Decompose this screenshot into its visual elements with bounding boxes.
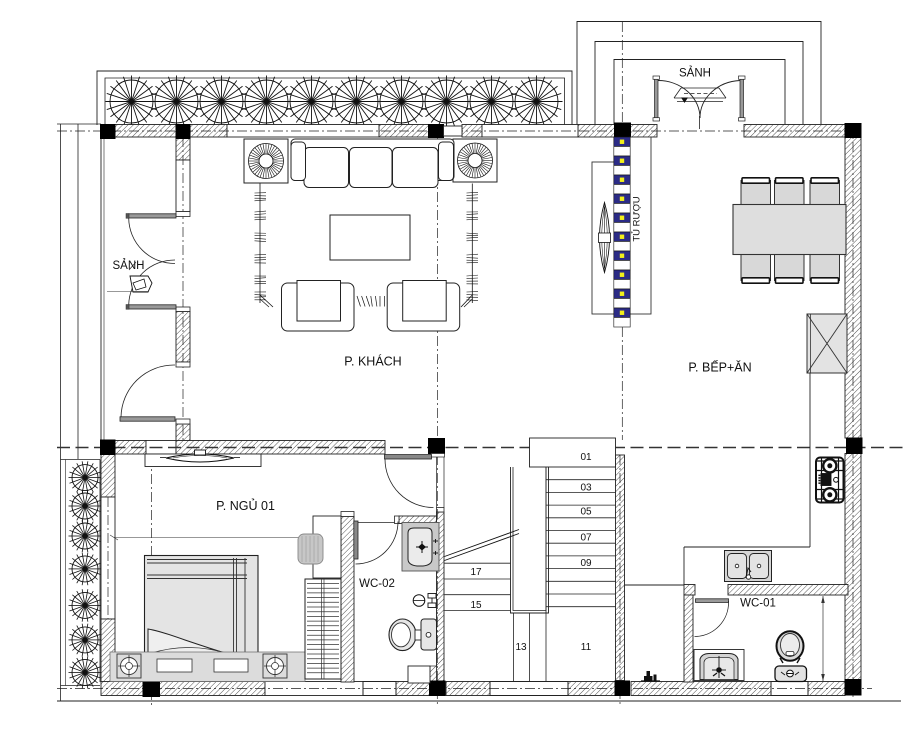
svg-text:P. NGỦ 01: P. NGỦ 01 — [216, 498, 275, 513]
svg-text:P. BẾP+ĂN: P. BẾP+ĂN — [688, 360, 751, 375]
svg-text:WC-01: WC-01 — [740, 598, 776, 610]
svg-text:07: 07 — [580, 533, 592, 544]
svg-text:09: 09 — [580, 558, 592, 569]
svg-text:03: 03 — [580, 483, 592, 494]
svg-text:WC-02: WC-02 — [359, 578, 395, 590]
svg-text:15: 15 — [470, 600, 482, 611]
svg-text:SẢNH: SẢNH — [679, 67, 711, 80]
svg-text:01: 01 — [580, 452, 592, 463]
svg-text:17: 17 — [470, 567, 482, 578]
svg-text:SẢNH: SẢNH — [113, 259, 145, 272]
svg-text:13: 13 — [515, 642, 527, 653]
svg-text:TỦ RƯỢU: TỦ RƯỢU — [631, 196, 643, 241]
svg-text:P. KHÁCH: P. KHÁCH — [344, 354, 401, 369]
svg-text:05: 05 — [580, 507, 592, 518]
svg-text:11: 11 — [581, 642, 592, 653]
